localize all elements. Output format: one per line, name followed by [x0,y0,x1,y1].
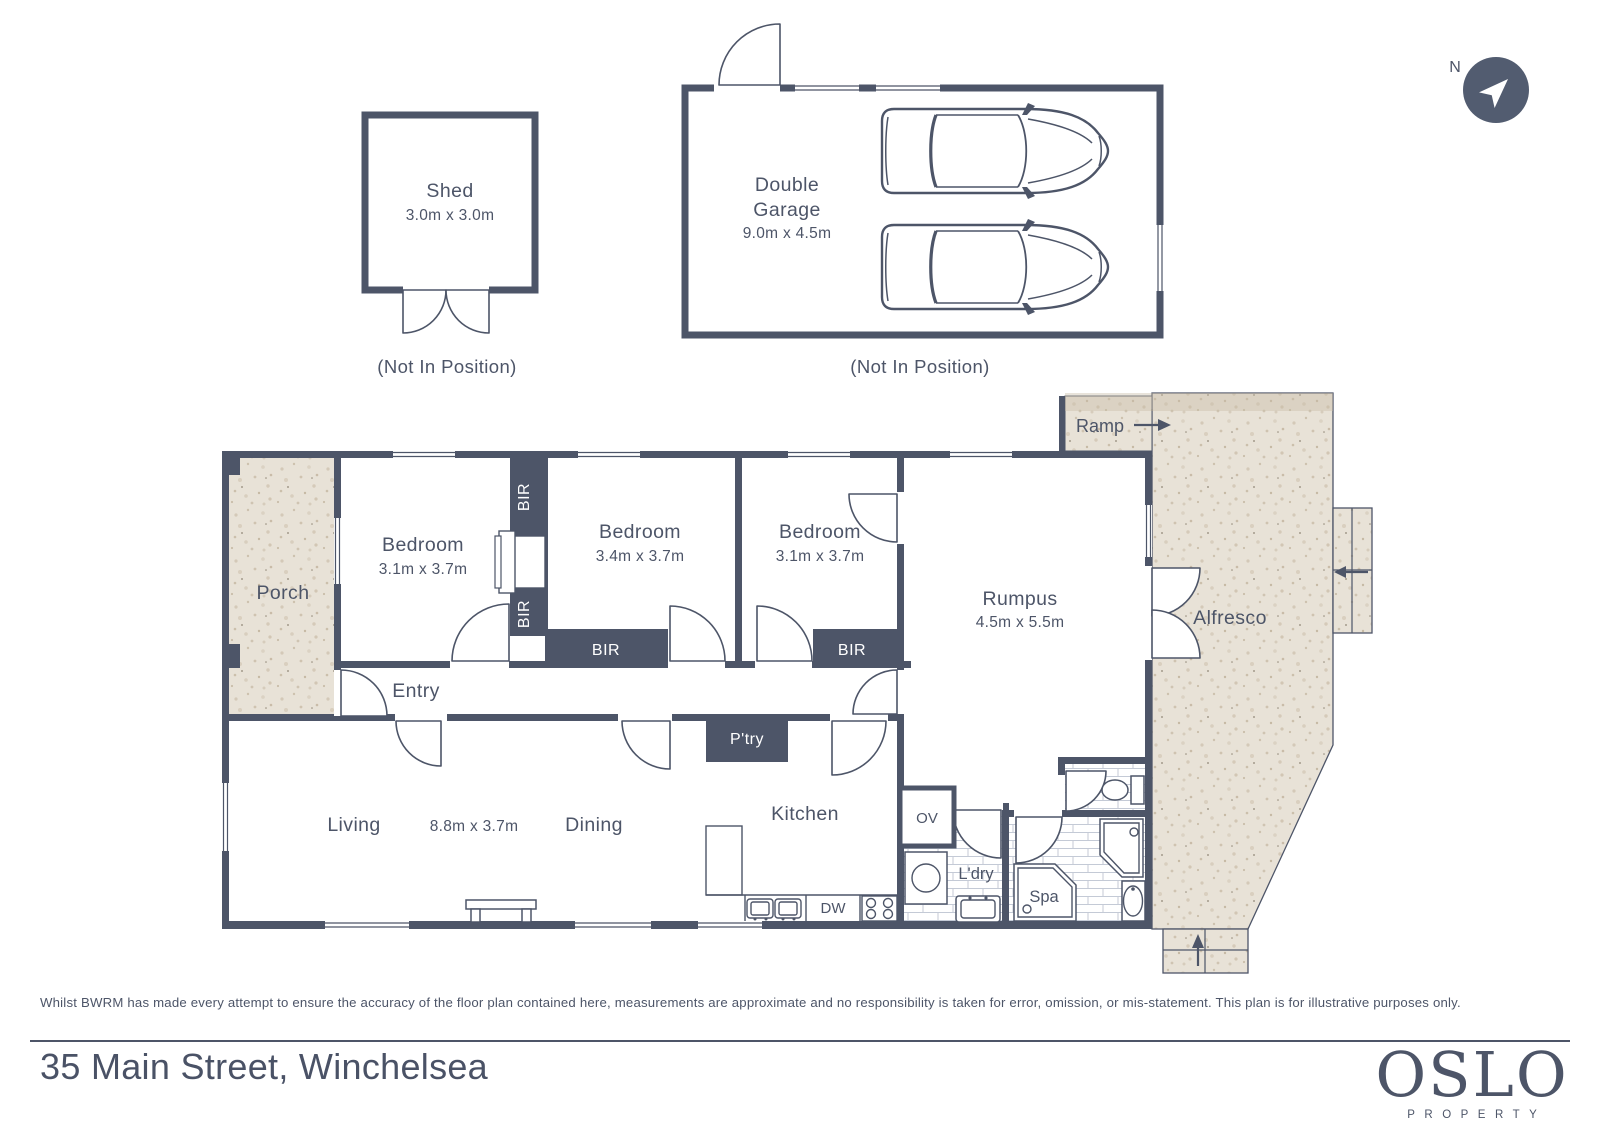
label-porch: Porch [257,582,310,604]
shed-name: Shed [426,180,473,202]
garage-name-2: Garage [753,199,820,221]
label-living: Living [327,814,380,836]
compass: N [1449,57,1529,123]
label-laundry: L'dry [958,865,994,883]
compass-north-label: N [1449,59,1461,76]
vanity-basin [1122,881,1145,921]
garage-note: (Not In Position) [850,356,989,377]
label-bedroom2-dims: 3.4m x 3.7m [596,548,685,565]
shed-door-left [403,290,446,333]
shed-note: (Not In Position) [377,356,516,377]
washing-machine [905,852,947,904]
label-oven: OV [916,810,938,827]
label-kitchen: Kitchen [771,803,839,825]
label-bedroom1-dims: 3.1m x 3.7m [379,561,468,578]
label-rumpus-dims: 4.5m x 5.5m [976,614,1065,631]
label-living-dining-dims: 8.8m x 3.7m [430,818,519,835]
car-1 [882,103,1108,199]
label-bedroom3-dims: 3.1m x 3.7m [776,548,865,565]
label-dining: Dining [565,814,623,836]
label-bedroom3-name: Bedroom [779,521,861,543]
label-spa: Spa [1029,888,1059,906]
label-bir-bed3: BIR [838,642,866,659]
garage-name-1: Double [755,174,819,196]
alfresco-steps-bottom [1163,929,1248,973]
shed-door-right [446,290,489,333]
label-bedroom2-name: Bedroom [599,521,681,543]
floor-plan-canvas: N Shed 3.0m x 3.0m (Not In Position) Dou… [0,0,1600,1131]
garage-dims: 9.0m x 4.5m [743,225,832,242]
alfresco-steps-right [1333,508,1372,633]
label-entry: Entry [392,680,440,702]
logo-name: OSLO [1372,1044,1572,1106]
floorplan-page: N Shed 3.0m x 3.0m (Not In Position) Dou… [0,0,1600,1131]
car-2 [882,219,1108,315]
page-title: 35 Main Street, Winchelsea [40,1046,488,1088]
label-bir-column-bottom: BIR [516,600,533,628]
shed [365,115,535,333]
label-pantry: P'try [730,731,764,748]
label-bedroom1-name: Bedroom [382,534,464,556]
footer-divider [30,1040,1570,1042]
agency-logo: OSLO PROPERTY [1372,1044,1572,1121]
label-dishwasher: DW [821,900,847,917]
label-rumpus-name: Rumpus [982,588,1057,610]
disclaimer-text: Whilst BWRM has made every attempt to en… [40,995,1580,1010]
porch-post [222,644,240,668]
porch-post [222,451,240,475]
bir-robe-detail [495,531,545,593]
label-bir-column-top: BIR [516,483,533,511]
label-ramp: Ramp [1076,416,1124,436]
label-alfresco: Alfresco [1193,607,1267,629]
shed-dims: 3.0m x 3.0m [406,207,495,224]
laundry-sink [956,896,1000,922]
label-bir-bed2: BIR [592,642,620,659]
garage-door [719,24,780,85]
